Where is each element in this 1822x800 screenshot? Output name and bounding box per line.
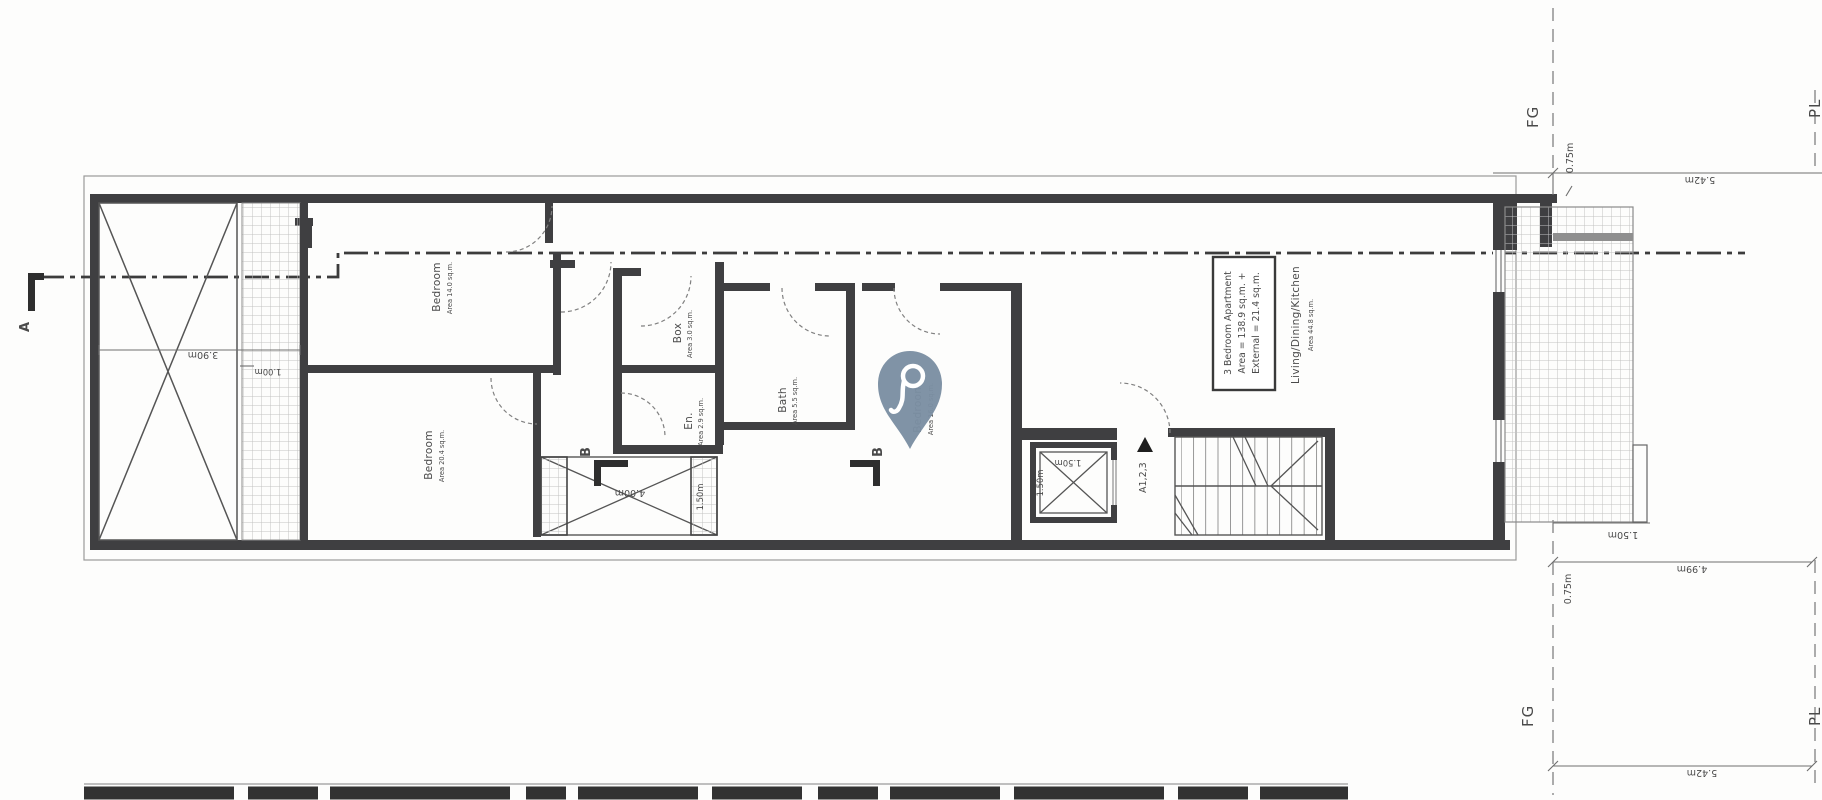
entrance-arrow: [1137, 437, 1153, 452]
lower-floor-band: [84, 784, 1348, 793]
dim-top-span: 5.42m: [1685, 174, 1715, 185]
floor-plan-canvas: A B B Bedroom Area 14.0 sq.m. Bedroom Ar…: [0, 0, 1822, 800]
room-area-bedroom2: Area 20.4 sq.m.: [438, 430, 446, 482]
section-b-left-label: B: [579, 447, 594, 457]
section-a-label: A: [18, 322, 33, 332]
room-area-box: Area 3.0 sq.m.: [686, 310, 694, 358]
room-label-box: Box: [672, 323, 684, 343]
dim-left-width: 3.90m: [188, 349, 218, 360]
room-area-ensuite: Area 2.9 sq.m.: [697, 398, 705, 446]
info-line-2: Area = 138.9 sq.m. +: [1237, 272, 1248, 373]
apartment-info-box: 3 Bedroom Apartment Area = 138.9 sq.m. +…: [1213, 257, 1275, 390]
apartment-ref-label: A1,2,3: [1138, 462, 1149, 493]
room-label-living: Living/Dining/Kitchen: [1290, 266, 1302, 384]
grid-fg-top: FG: [1524, 106, 1542, 128]
grid-pl-bottom: PL: [1806, 707, 1822, 726]
dim-lift-depth: 1.50m: [1035, 470, 1045, 497]
dim-bottom-span1: 4.99m: [1677, 563, 1707, 574]
room-area-living: Area 44.8 sq.m.: [1307, 299, 1315, 351]
grid-pl-top: PL: [1806, 99, 1822, 118]
info-line-1: 3 Bedroom Apartment: [1223, 271, 1234, 375]
grid-fg-bottom: FG: [1519, 705, 1537, 727]
terrace: [1505, 207, 1647, 522]
room-label-bedroom2: Bedroom: [423, 430, 435, 480]
section-marker-b-right: B: [850, 447, 886, 486]
info-line-3: External = 21.4 sq.m.: [1251, 272, 1262, 374]
staircase: [1175, 437, 1322, 535]
dim-terrace-step: 1.50m: [1608, 529, 1638, 540]
room-area-bedroom1: Area 14.0 sq.m.: [446, 262, 454, 314]
section-marker-a: A: [18, 273, 44, 332]
dim-top-offset: 0.75m: [1565, 143, 1576, 173]
dim-bottom-offset: 0.75m: [1563, 574, 1574, 604]
section-b-right-label: B: [871, 447, 886, 457]
door-arcs: [491, 206, 1170, 437]
floor-plan-page: A B B Bedroom Area 14.0 sq.m. Bedroom Ar…: [0, 0, 1822, 800]
dim-bottom-span2: 5.42m: [1687, 767, 1717, 778]
dim-left-offset: 1.00m: [255, 367, 282, 377]
dim-lift-width: 1.50m: [1055, 458, 1082, 468]
room-label-bedroom1: Bedroom: [431, 262, 443, 312]
dimension-labels: 3.90m 1.00m 4.00m 1.50m 1.50m 1.50m 1.50…: [188, 143, 1717, 778]
dim-shaft-width: 1.50m: [695, 484, 705, 511]
room-label-bath: Bath: [777, 387, 789, 413]
room-label-ensuite: En.: [683, 412, 695, 430]
room-area-bath: Area 5.5 sq.m.: [791, 377, 799, 425]
dim-shaft-length: 4.00m: [615, 487, 645, 498]
grid-labels: FG FG PL PL A1,2,3: [1138, 99, 1822, 727]
